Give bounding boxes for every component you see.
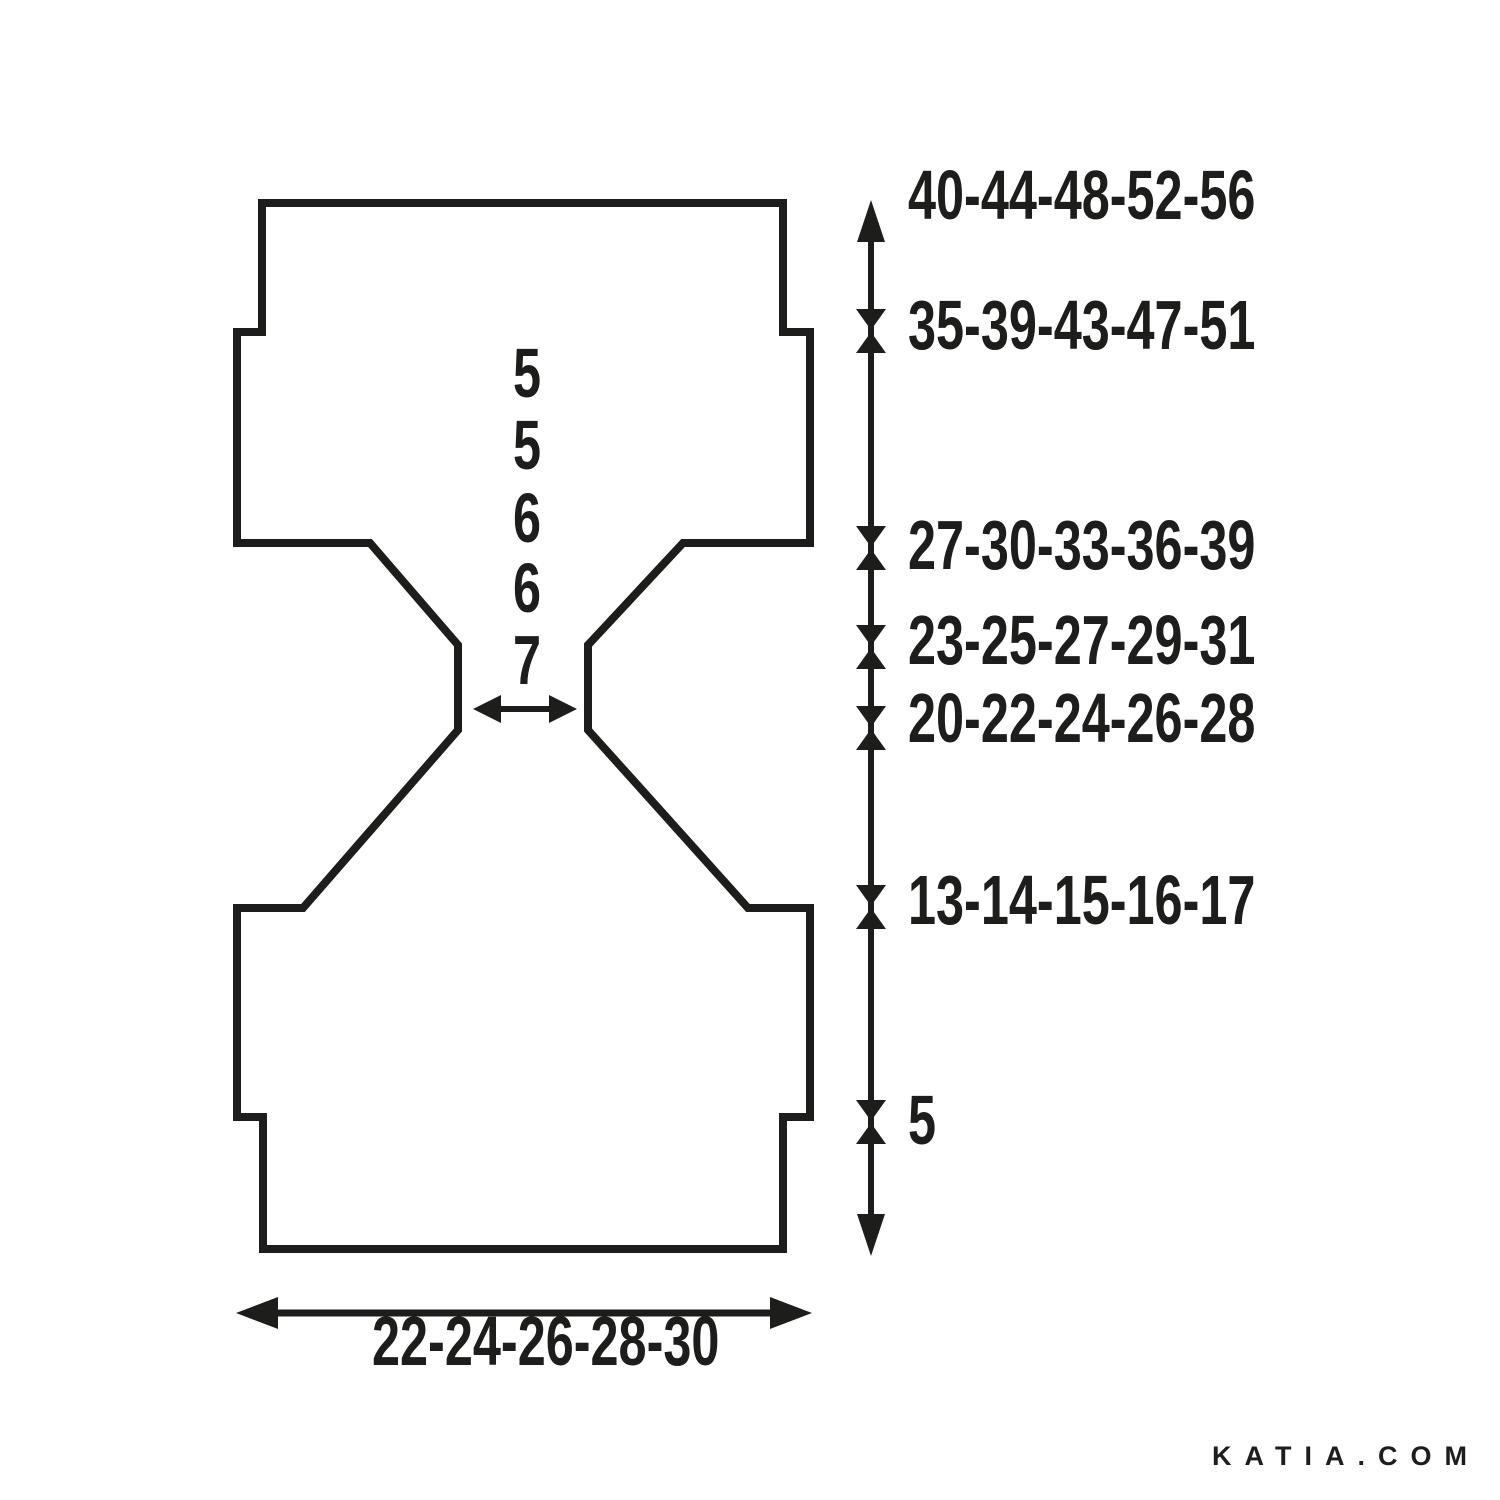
waist-width-arrow-icon xyxy=(473,695,577,723)
pattern-schematic-page: 40-44-48-52-56 35-39-43-47-51 27-30-33-3… xyxy=(0,0,1500,1500)
vertical-line-top-arrow-icon xyxy=(857,200,885,242)
measurement-label-upper-waist: 23-25-27-29-31 xyxy=(908,610,1255,670)
schematic-drawing xyxy=(0,0,1500,1500)
measurement-label-top-width: 40-44-48-52-56 xyxy=(908,165,1255,225)
center-measurement-label: 6 xyxy=(469,558,584,618)
measurement-label-waist: 20-22-24-26-28 xyxy=(908,688,1255,748)
measurement-label-underarm: 27-30-33-36-39 xyxy=(908,515,1255,575)
center-measurement-label: 5 xyxy=(469,415,584,475)
measurement-label-bottom-width: 22-24-26-28-30 xyxy=(372,1311,660,1371)
vertical-line-bottom-arrow-icon xyxy=(857,1214,885,1256)
measurement-label-lower-shaping: 13-14-15-16-17 xyxy=(908,870,1255,930)
center-measurement-label: 7 xyxy=(469,630,584,690)
measurement-label-hem: 5 xyxy=(908,1090,936,1150)
center-measurement-label: 6 xyxy=(469,488,584,548)
brand-watermark: KATIA.COM xyxy=(1212,1441,1480,1472)
center-measurement-label: 5 xyxy=(469,343,584,403)
measurement-label-shoulder: 35-39-43-47-51 xyxy=(908,295,1255,355)
